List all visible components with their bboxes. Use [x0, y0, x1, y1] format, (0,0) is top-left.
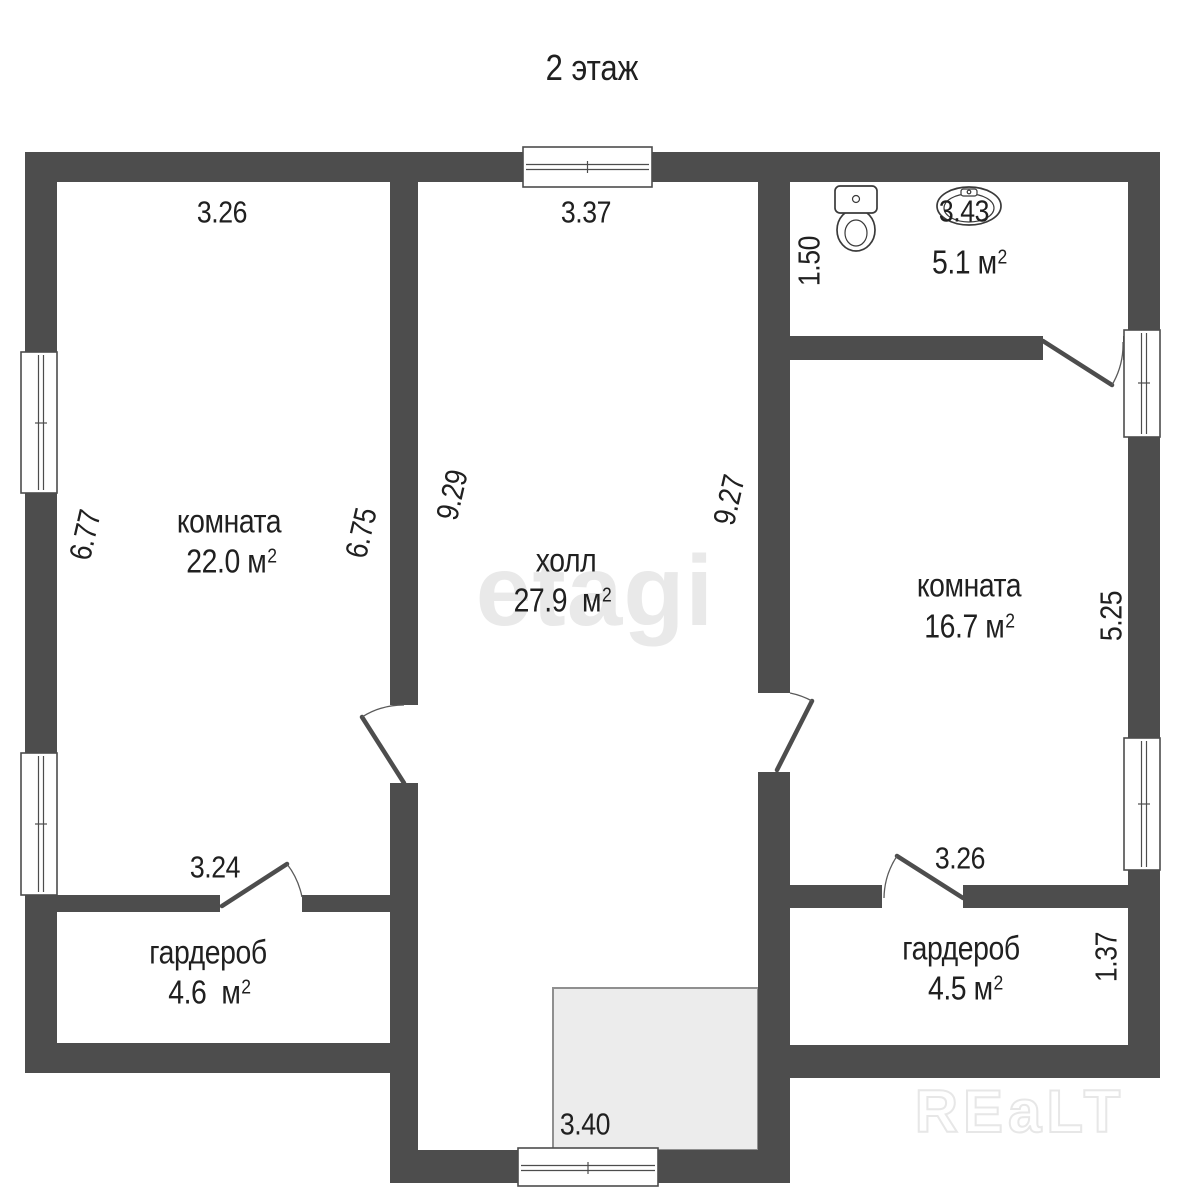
window-right-lower: [1124, 738, 1160, 870]
room-left-label: комната: [177, 505, 281, 538]
window-bottom: [518, 1148, 658, 1186]
floor-title: 2 этаж: [546, 50, 639, 86]
floor-plan: etagi REaLT: [0, 0, 1200, 1200]
dim-stair-width: 3.40: [560, 1109, 610, 1140]
dim-top-center: 3.37: [561, 197, 611, 228]
toilet-icon: [835, 186, 877, 251]
wardrobe-right-area: 4.5 м2: [928, 972, 1002, 1005]
dim-bath-depth: 1.50: [794, 236, 825, 286]
door-right-room: [777, 693, 812, 770]
wardrobe-left-label: гардероб: [149, 936, 266, 969]
door-left-room: [362, 705, 404, 783]
dim-right-room-height: 5.25: [1096, 591, 1127, 641]
dim-wardrobe-right-width: 3.26: [935, 843, 985, 874]
window-top: [523, 147, 652, 187]
window-left-lower: [21, 753, 57, 895]
dim-wardrobe-left-width: 3.24: [190, 852, 240, 883]
room-left-area: 22.0 м2: [186, 545, 275, 578]
wardrobe-left-area: 4.6 м2: [168, 976, 250, 1009]
room-right-area: 16.7 м2: [924, 610, 1013, 643]
hall-label: холл: [536, 544, 596, 577]
dim-wardrobe-right-depth: 1.37: [1091, 932, 1122, 982]
window-right-upper: [1124, 330, 1160, 437]
dim-top-left: 3.26: [197, 197, 247, 228]
bathroom-area: 5.1 м2: [932, 246, 1006, 279]
door-bathroom: [1043, 341, 1123, 385]
wardrobe-right-label: гардероб: [902, 932, 1019, 965]
dim-top-right: 3.43: [939, 196, 989, 227]
room-right-label: комната: [917, 569, 1021, 602]
window-left-upper: [21, 352, 57, 493]
hall-area: 27.9 м2: [514, 584, 611, 617]
